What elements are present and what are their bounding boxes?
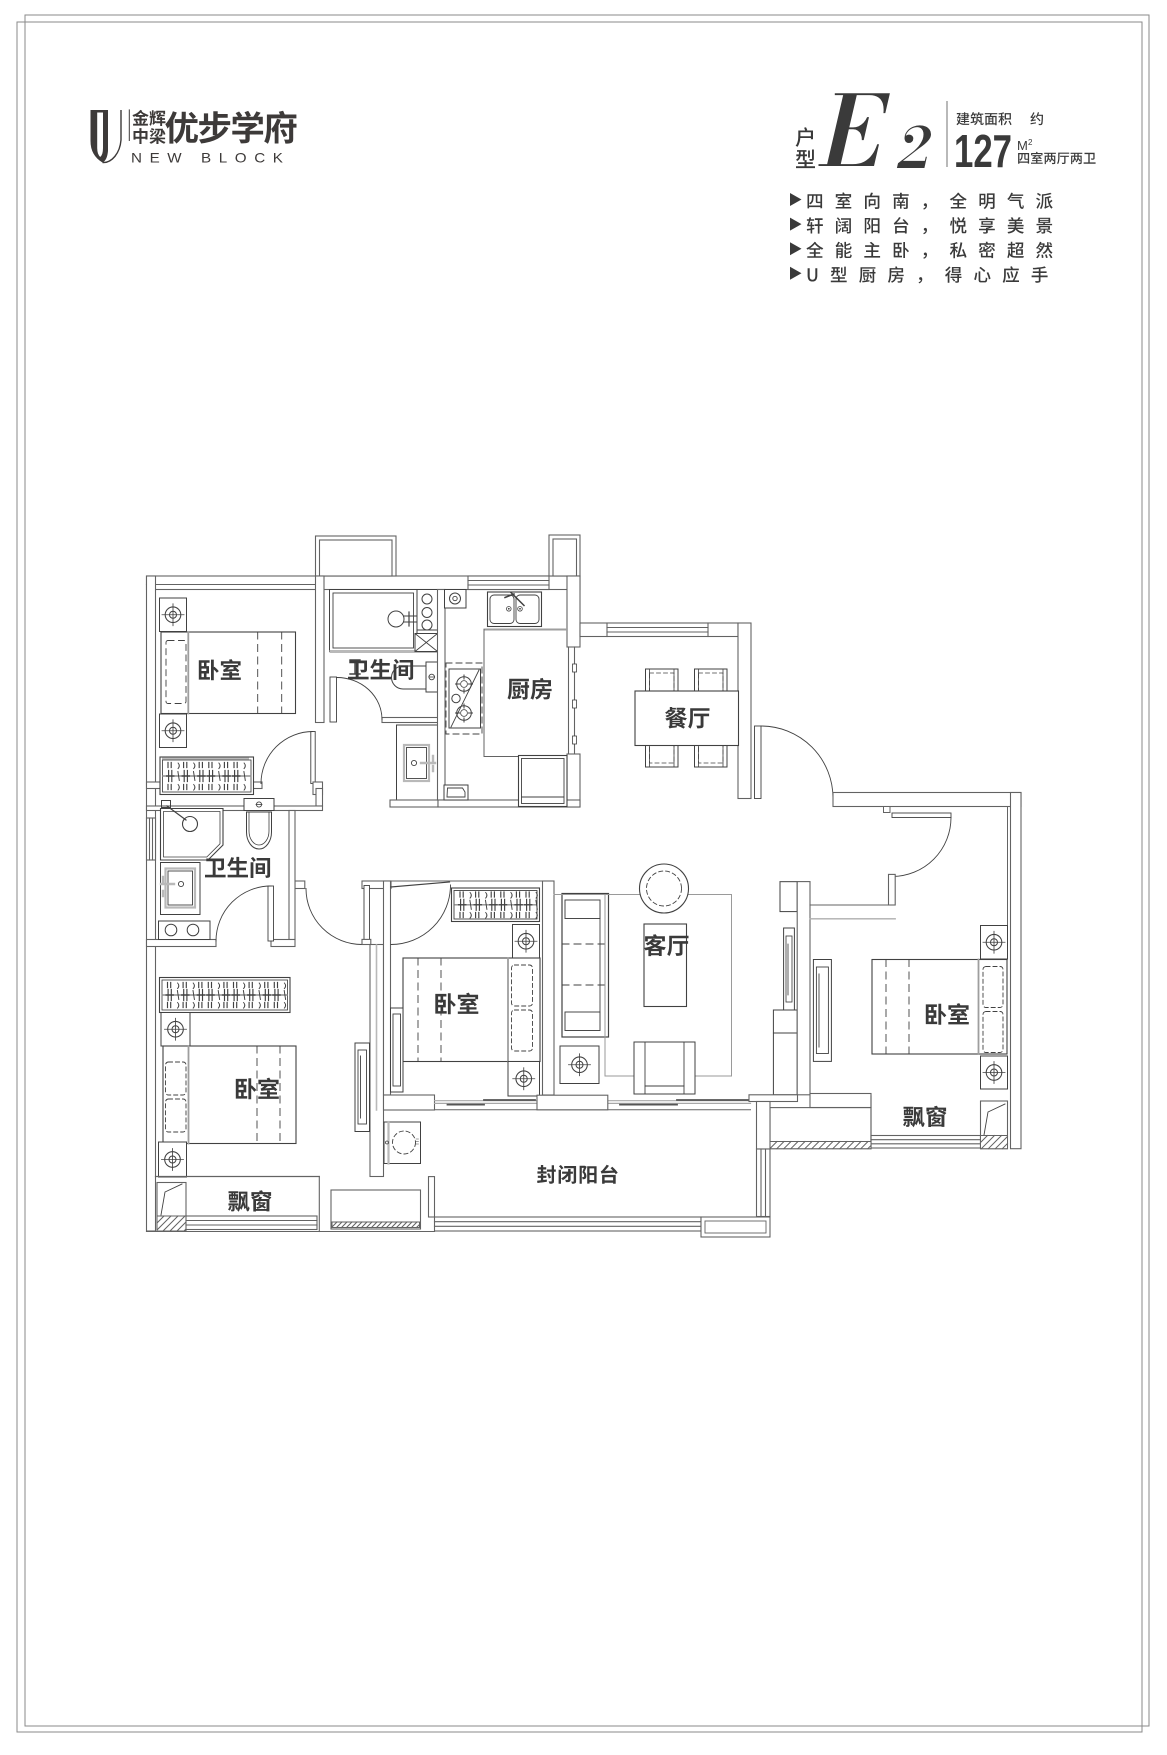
svg-text:2: 2 <box>1028 138 1033 147</box>
svg-text:M: M <box>1017 138 1028 153</box>
svg-text:127: 127 <box>954 125 1012 177</box>
svg-text:NEW BLOCK: NEW BLOCK <box>131 150 291 166</box>
